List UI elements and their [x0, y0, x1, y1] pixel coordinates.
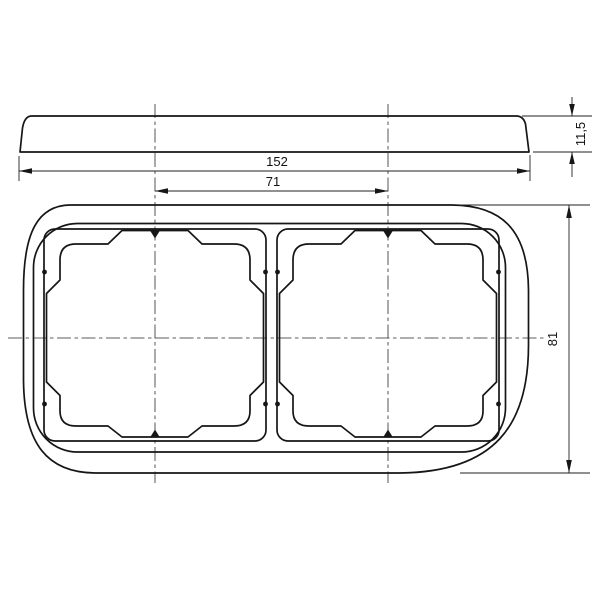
dimension-71-label: 71	[266, 174, 280, 189]
dimension-152-label: 152	[266, 154, 288, 169]
arrowhead	[569, 152, 575, 164]
dimension-11-5-label: 11,5	[573, 122, 588, 146]
arrowhead	[569, 104, 575, 116]
latch-dot	[496, 402, 501, 407]
dimension-81-label: 81	[545, 332, 560, 346]
latch-dot	[42, 270, 47, 275]
center-mark-arrow	[383, 231, 393, 239]
frame-outer-contour	[24, 205, 529, 473]
arrowhead	[19, 168, 32, 174]
arrowhead	[155, 188, 168, 194]
arrowhead	[566, 205, 572, 218]
latch-dot	[275, 270, 280, 275]
technical-drawing-canvas: 152 71 11,5	[0, 0, 600, 600]
center-mark-arrow	[150, 231, 160, 239]
dimension-71: 71	[155, 174, 388, 194]
front-view	[8, 205, 546, 473]
drawing-sheet: 152 71 11,5	[0, 0, 600, 600]
latch-dot	[496, 270, 501, 275]
profile-view	[20, 116, 529, 152]
profile-outline	[20, 116, 529, 152]
latch-dot	[275, 402, 280, 407]
latch-dot	[263, 402, 268, 407]
dimension-11-5: 11,5	[522, 97, 592, 177]
dimension-81: 81	[460, 205, 590, 473]
latch-dot	[42, 402, 47, 407]
center-mark-arrow	[150, 430, 160, 438]
arrowhead	[566, 460, 572, 473]
arrowhead	[517, 168, 530, 174]
arrowhead	[375, 188, 388, 194]
center-mark-arrow	[383, 430, 393, 438]
latch-dot	[263, 270, 268, 275]
